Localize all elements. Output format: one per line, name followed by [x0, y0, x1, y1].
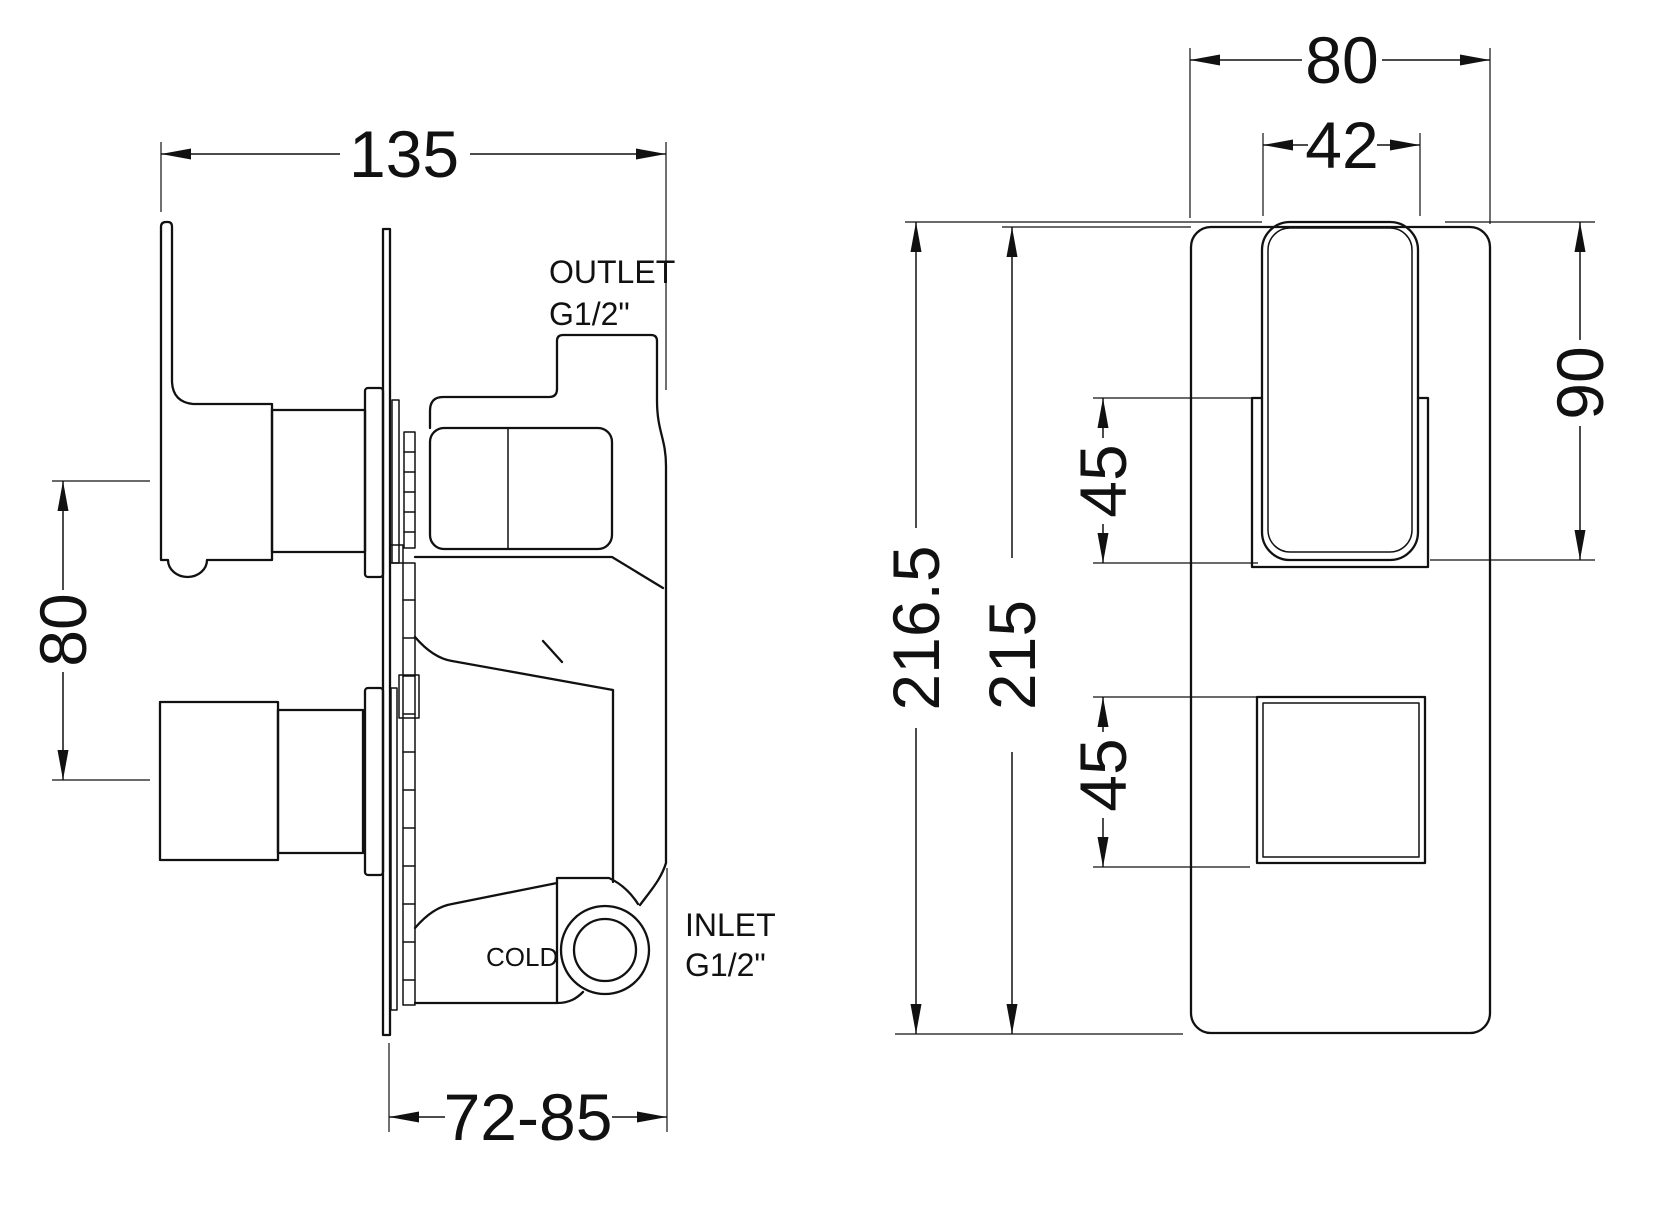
outlet-label: OUTLET [549, 254, 675, 290]
lever-flange [365, 388, 383, 577]
handle-trim-wings [1252, 398, 1428, 567]
knob-body [160, 702, 278, 860]
outlet-thread-label: G1/2" [549, 296, 630, 332]
handle-outer [1262, 222, 1418, 560]
dim-42-text: 42 [1305, 108, 1378, 182]
thread-lines-top [404, 452, 415, 532]
side-view: 135 80 72-85 OUTLET G1/2" COLD INLET G1/… [26, 117, 776, 1154]
lever-handle-side [161, 222, 383, 577]
dim-80-plate-text: 80 [1305, 23, 1378, 97]
inlet-thread-label: G1/2" [685, 947, 766, 983]
dim-215-text: 215 [975, 600, 1049, 710]
dim-45-lower: 45 [1066, 697, 1257, 867]
body-top-edge [430, 389, 557, 428]
body-cone [415, 637, 613, 928]
stack-strip-bottom [391, 688, 397, 1010]
dim-80-spacing-text: 80 [26, 593, 100, 666]
stack-threads-top [404, 432, 415, 548]
dim-135-text: 135 [349, 117, 459, 191]
handle-inner [1268, 228, 1412, 552]
dim-215: 215 [975, 227, 1191, 1034]
wall-plate-front [1191, 227, 1490, 1033]
outlet-boss [557, 335, 666, 905]
valve-body-side [415, 335, 666, 1003]
dim-45-lower-text: 45 [1066, 738, 1140, 811]
dim-216-5: 216.5 [879, 222, 1262, 1034]
cartridge-chamber [430, 428, 612, 549]
inlet-port-inner [574, 919, 636, 981]
stack-threads-bottom [403, 563, 415, 1005]
inlet-label: INLET [685, 907, 776, 943]
dim-42: 42 [1263, 108, 1420, 216]
thread-lines-bottom [403, 600, 415, 980]
front-view: 80 42 90 45 [879, 23, 1617, 1034]
square-outer [1257, 697, 1425, 863]
technical-drawing: 135 80 72-85 OUTLET G1/2" COLD INLET G1/… [0, 0, 1653, 1222]
temperature-knob-front [1257, 697, 1425, 863]
knob-side [160, 688, 383, 875]
cartridge-stack-top [390, 400, 415, 563]
lever-handle-front [1252, 222, 1428, 567]
wall-plate-side [383, 229, 390, 1035]
square-inner [1263, 703, 1419, 857]
dim-80-spacing: 80 [26, 481, 150, 780]
lever-outline [161, 222, 272, 577]
knob-stem [278, 710, 363, 853]
dim-90: 90 [1430, 222, 1617, 560]
dim-72-85-text: 72-85 [444, 1080, 613, 1154]
cartridge-stack-bottom [391, 563, 419, 1010]
lever-stem [272, 410, 365, 552]
knob-flange [365, 688, 383, 875]
dim-90-text: 90 [1543, 346, 1617, 419]
drawing-canvas: 135 80 72-85 OUTLET G1/2" COLD INLET G1/… [0, 0, 1653, 1222]
dim-216-5-text: 216.5 [879, 545, 953, 710]
chamber-floor [415, 557, 663, 588]
cold-pocket [557, 878, 638, 1003]
stack-nut-bottom [399, 675, 419, 718]
dim-45-upper: 45 [1066, 398, 1258, 563]
cold-label: COLD [486, 942, 558, 972]
dim-45-upper-text: 45 [1066, 444, 1140, 517]
stack-strip-top [392, 400, 399, 563]
